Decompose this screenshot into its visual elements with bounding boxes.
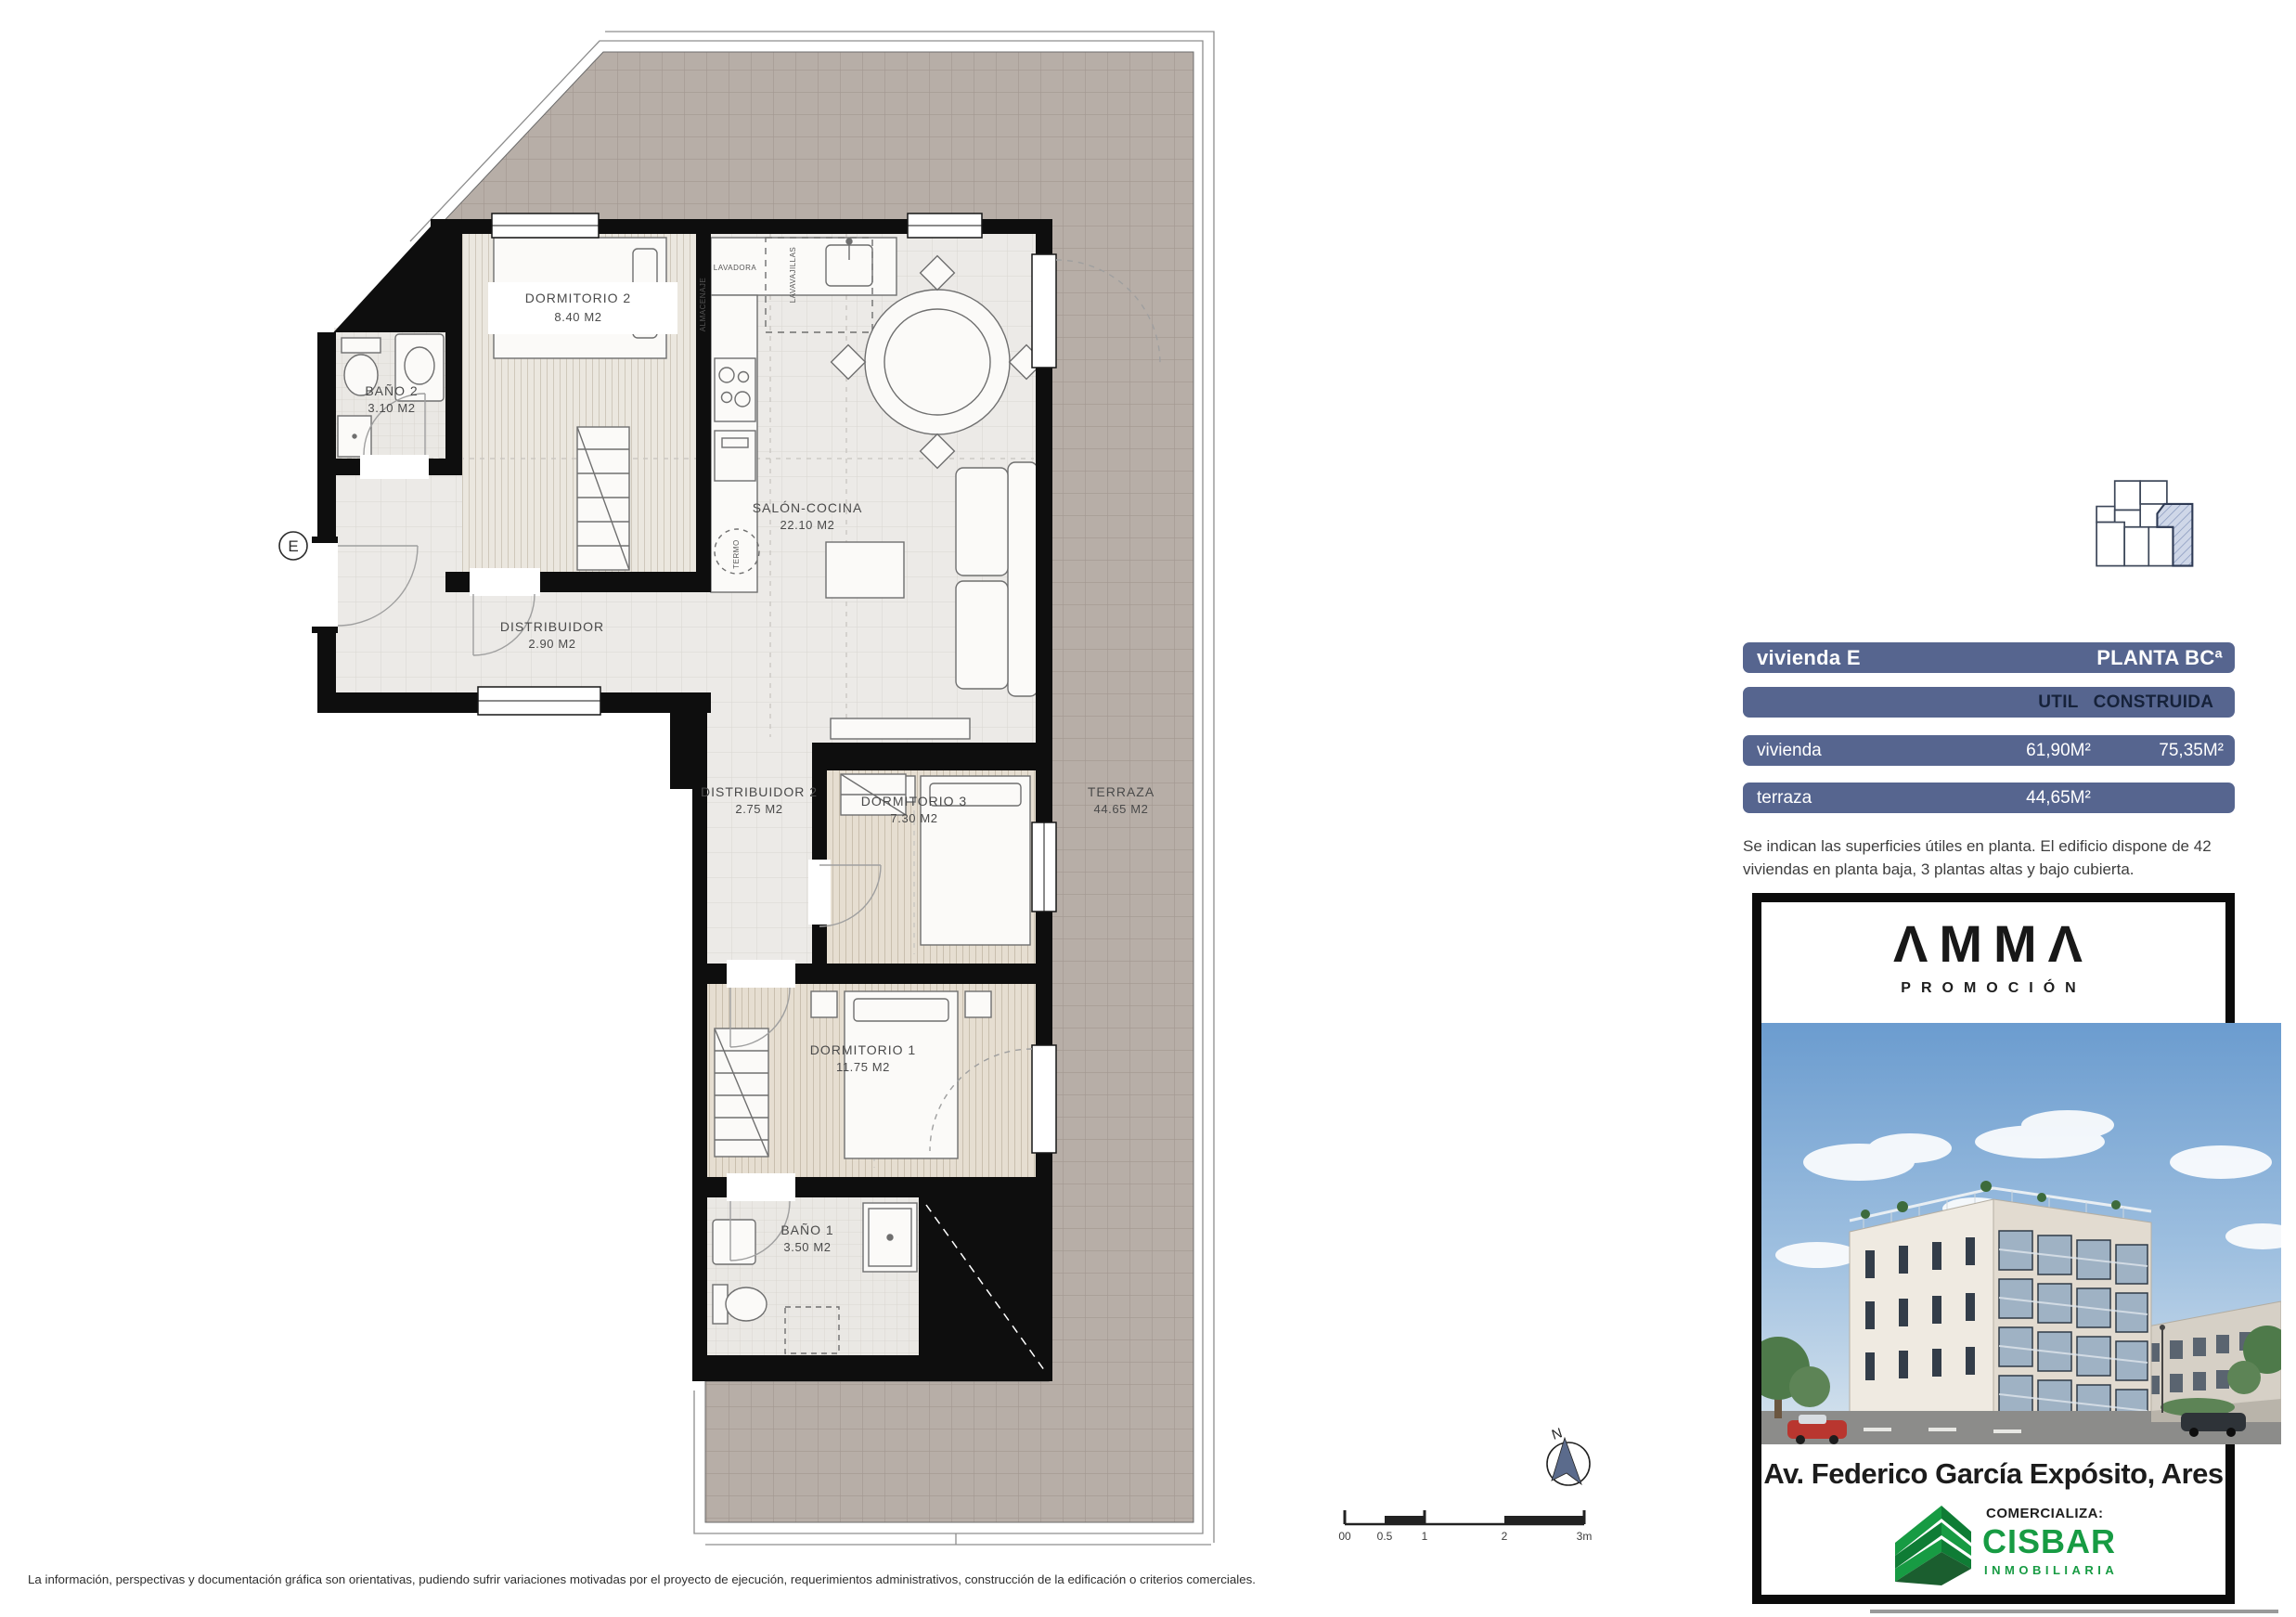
building-render	[1761, 1023, 2281, 1444]
brand-logo: ΛMMΛ	[1761, 913, 2225, 974]
north-arrow-icon: N	[1547, 1425, 1590, 1485]
entrance-marker: E	[279, 532, 307, 560]
room-label-bano-1: BAÑO 1	[780, 1222, 833, 1237]
svg-text:8.40 M2: 8.40 M2	[554, 310, 601, 324]
svg-text:11.75 M2: 11.75 M2	[836, 1060, 890, 1074]
table-row-vivienda: vivienda 61,90M² 75,35M²	[1743, 735, 2235, 766]
room-label-bano-2: BAÑO 2	[365, 383, 418, 398]
table-row-terraza: terraza 44,65M²	[1743, 783, 2235, 813]
cisbar-logo-icon	[1888, 1500, 1979, 1585]
svg-text:1: 1	[1422, 1530, 1428, 1543]
table-columns-bar: UTIL CONSTRUIDA	[1743, 687, 2235, 718]
room-label-salon-cocina: SALÓN-COCINA	[753, 500, 863, 515]
svg-text:7.30 M2: 7.30 M2	[890, 811, 937, 825]
address: Av. Federico García Expósito, Ares	[1761, 1457, 2225, 1491]
unit-title: vivienda E	[1757, 646, 1861, 670]
room-label-dormitorio-1: DORMITORIO 1	[810, 1042, 916, 1057]
svg-text:0.5: 0.5	[1377, 1530, 1393, 1543]
label-almacenaje: ALMACENAJE	[699, 278, 707, 331]
svg-text:22.10 M2: 22.10 M2	[780, 518, 834, 532]
north-and-scale: N 00 0.5 1 2 3m	[1318, 1425, 1606, 1546]
disclaimer-text: La información, perspectivas y documenta…	[28, 1572, 1494, 1586]
room-label-dormitorio-3: DORMITORIO 3	[861, 794, 967, 808]
floor-title: PLANTA BCª	[2096, 646, 2223, 670]
brand-subtitle: PROMOCIÓN	[1761, 980, 2225, 997]
marketer-subtitle: INMOBILIARIA	[1984, 1563, 2118, 1577]
entrance-label: E	[288, 537, 298, 555]
table-header-bar: vivienda E PLANTA BCª	[1743, 642, 2235, 673]
frame-shadow	[1870, 1610, 2278, 1613]
svg-text:3m: 3m	[1577, 1530, 1593, 1543]
svg-text:2: 2	[1502, 1530, 1508, 1543]
marketer-name: CISBAR	[1982, 1522, 2116, 1561]
room-label-distribuidor: DISTRIBUIDOR	[500, 619, 604, 634]
svg-text:2.75 M2: 2.75 M2	[735, 802, 782, 816]
north-label: N	[1550, 1425, 1565, 1443]
label-termo: TERMO	[732, 539, 741, 568]
svg-text:3.50 M2: 3.50 M2	[783, 1240, 831, 1254]
room-label-terraza: TERRAZA	[1088, 784, 1154, 799]
scale-bar: 00 0.5 1 2 3m	[1338, 1510, 1592, 1543]
room-label-dormitorio-2: DORMITORIO 2	[525, 291, 631, 305]
brochure-page: { "plan": { "entrance_label": "E", "room…	[0, 0, 2296, 1617]
svg-text:44.65 M2: 44.65 M2	[1093, 802, 1148, 816]
svg-text:00: 00	[1338, 1530, 1351, 1543]
marketer-label: COMERCIALIZA:	[1986, 1506, 2104, 1521]
surface-note: Se indican las superficies útiles en pla…	[1743, 835, 2251, 881]
key-plan	[2057, 462, 2238, 602]
floor-plan: E DORMITORIO 2 8.40 M2 BAÑO 2 3.10 M2 DI…	[269, 26, 1244, 1548]
label-lavavajillas: LAVAVAJILLAS	[789, 247, 797, 304]
col-construida: CONSTRUIDA	[2082, 692, 2225, 713]
room-label-distribuidor-2: DISTRIBUIDOR 2	[701, 784, 818, 799]
label-lavadora: LAVADORA	[714, 264, 757, 272]
svg-text:2.90 M2: 2.90 M2	[528, 637, 575, 651]
svg-text:3.10 M2: 3.10 M2	[368, 401, 415, 415]
